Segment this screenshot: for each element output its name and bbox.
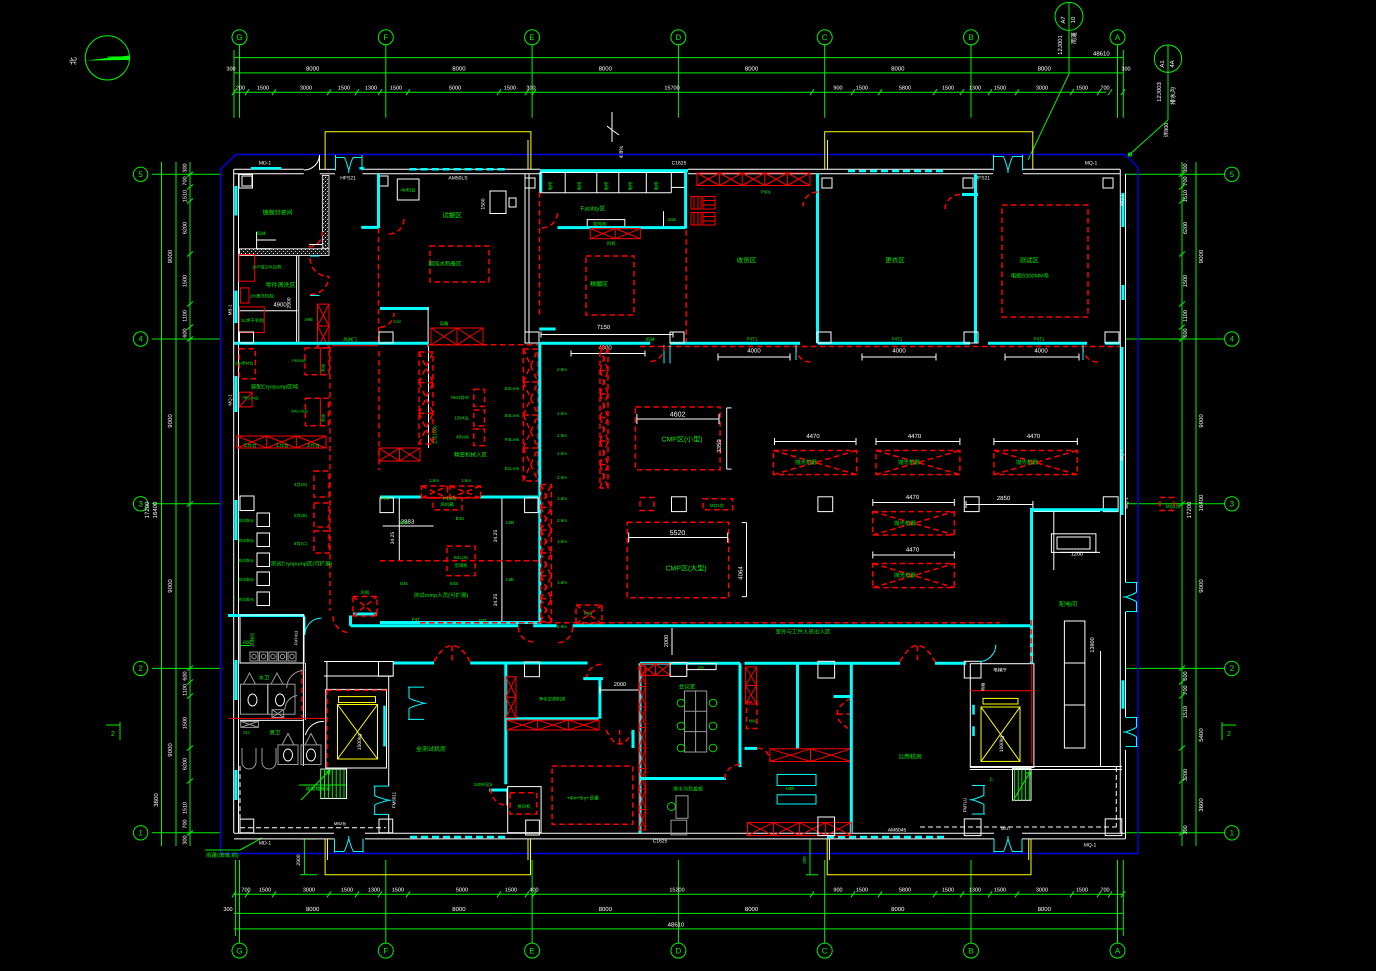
svg-text:17200: 17200 xyxy=(144,501,151,518)
svg-text:风淋: 风淋 xyxy=(646,337,655,342)
svg-text:1300: 1300 xyxy=(969,86,981,92)
svg-text:B4Lm6台: B4Lm6台 xyxy=(291,409,308,414)
svg-text:5000: 5000 xyxy=(456,888,468,894)
svg-text:300: 300 xyxy=(802,856,807,864)
svg-text:镀膜封装间: 镀膜封装间 xyxy=(262,209,292,217)
svg-text:工作台: 工作台 xyxy=(243,443,257,448)
svg-text:P09: P09 xyxy=(381,496,390,501)
svg-text:2: 2 xyxy=(1227,731,1231,738)
svg-text:风淋: 风淋 xyxy=(257,231,266,236)
svg-text:Facility区: Facility区 xyxy=(581,206,606,213)
svg-text:雨蓬(玻璃,钢): 雨蓬(玻璃,钢) xyxy=(206,852,239,859)
svg-text:4.8%: 4.8% xyxy=(619,146,625,159)
svg-text:2H清洗机组: 2H清洗机组 xyxy=(250,294,274,299)
svg-text:MQ-1: MQ-1 xyxy=(1124,497,1129,509)
svg-text:6200: 6200 xyxy=(183,222,189,234)
svg-text:1500: 1500 xyxy=(338,86,350,92)
svg-text:1500: 1500 xyxy=(994,888,1006,894)
svg-text:300: 300 xyxy=(526,86,535,92)
svg-text:抛光机器: 抛光机器 xyxy=(894,520,917,527)
svg-text:A: A xyxy=(1115,33,1121,42)
svg-text:P4T1: P4T1 xyxy=(1034,337,1045,342)
svg-text:排水沟: 排水沟 xyxy=(1169,87,1177,105)
svg-text:精鍍区: 精鍍区 xyxy=(590,280,608,288)
svg-text:配电间: 配电间 xyxy=(1059,600,1077,608)
svg-text:全测试机房: 全测试机房 xyxy=(416,745,446,753)
svg-text:3: 3 xyxy=(138,500,143,509)
svg-text:工位1000: 工位1000 xyxy=(433,425,438,445)
svg-text:1510: 1510 xyxy=(183,190,189,202)
svg-text:8000: 8000 xyxy=(452,66,466,73)
svg-text:3HE: 3HE xyxy=(304,317,313,322)
svg-text:700: 700 xyxy=(1100,86,1109,92)
svg-text:15200: 15200 xyxy=(669,888,684,894)
svg-text:MQ-1: MQ-1 xyxy=(228,394,233,406)
svg-text:1500: 1500 xyxy=(183,275,189,287)
svg-text:13900: 13900 xyxy=(1090,637,1096,652)
svg-text:2台: 2台 xyxy=(698,665,704,670)
svg-text:3000: 3000 xyxy=(1036,86,1048,92)
svg-text:2900: 2900 xyxy=(287,297,293,308)
svg-text:测试泵台: 测试泵台 xyxy=(238,597,254,602)
svg-text:B: B xyxy=(968,33,973,42)
svg-text:1.8m: 1.8m xyxy=(557,496,567,501)
svg-text:测试泵台: 测试泵台 xyxy=(238,577,254,582)
svg-text:8000: 8000 xyxy=(1038,906,1052,913)
svg-text:3200: 3200 xyxy=(1183,769,1189,781)
svg-text:4: 4 xyxy=(1230,335,1235,344)
svg-text:300: 300 xyxy=(226,67,235,73)
svg-text:MQ-1: MQ-1 xyxy=(1084,843,1097,849)
svg-text:1H7或10K台机: 1H7或10K台机 xyxy=(252,265,282,270)
svg-text:MQ-1: MQ-1 xyxy=(1085,161,1098,167)
svg-text:34.25: 34.25 xyxy=(390,532,396,545)
svg-text:17200: 17200 xyxy=(1186,501,1193,518)
svg-text:1500: 1500 xyxy=(183,717,189,729)
svg-text:1: 1 xyxy=(138,829,143,838)
svg-text:2.9m: 2.9m xyxy=(557,518,567,523)
svg-text:风淋门: 风淋门 xyxy=(343,337,357,342)
svg-text:9000: 9000 xyxy=(167,579,174,593)
svg-text:1504台: 1504台 xyxy=(454,416,469,421)
svg-text:1.8m: 1.8m xyxy=(557,580,567,585)
svg-text:4900: 4900 xyxy=(273,302,287,309)
svg-text:600: 600 xyxy=(1183,671,1189,680)
svg-text:测试泵台: 测试泵台 xyxy=(238,538,254,543)
svg-text:抛光机器: 抛光机器 xyxy=(795,459,818,466)
svg-text:P4M台: P4M台 xyxy=(443,496,457,501)
svg-text:会议室: 会议室 xyxy=(679,684,696,691)
svg-text:FM7LU: FM7LU xyxy=(963,798,968,813)
svg-text:1.8m: 1.8m xyxy=(429,478,439,483)
svg-text:电柜: 电柜 xyxy=(654,181,659,190)
svg-text:700: 700 xyxy=(241,888,250,894)
svg-text:D: D xyxy=(676,946,682,955)
svg-text:1500: 1500 xyxy=(1076,888,1088,894)
svg-text:电梯厅: 电梯厅 xyxy=(993,668,1007,673)
svg-text:3000: 3000 xyxy=(1036,888,1048,894)
svg-text:M61T: M61T xyxy=(1001,826,1012,831)
svg-text:收货区: 收货区 xyxy=(737,257,757,265)
svg-text:10: 10 xyxy=(1070,16,1077,23)
svg-text:泵组: 泵组 xyxy=(321,414,326,422)
svg-text:1500: 1500 xyxy=(341,888,353,894)
svg-text:1000kg: 1000kg xyxy=(999,736,1005,753)
svg-text:E: E xyxy=(529,33,534,42)
svg-text:3000: 3000 xyxy=(300,86,312,92)
svg-text:8000: 8000 xyxy=(306,66,320,73)
svg-text:公用机房: 公用机房 xyxy=(898,753,922,761)
svg-text:测试Cryopump区(可扩展): 测试Cryopump区(可扩展) xyxy=(270,561,332,568)
svg-text:6台(C): 6台(C) xyxy=(294,541,308,546)
svg-text:排风机: 排风机 xyxy=(517,804,531,809)
svg-text:6200: 6200 xyxy=(183,758,189,770)
svg-text:7150: 7150 xyxy=(597,324,611,331)
svg-text:6200: 6200 xyxy=(1183,222,1189,234)
svg-text:9000: 9000 xyxy=(167,743,174,757)
svg-text:8000: 8000 xyxy=(745,66,759,73)
svg-text:900: 900 xyxy=(833,888,842,894)
svg-text:8000: 8000 xyxy=(599,906,613,913)
svg-text:1500: 1500 xyxy=(259,888,271,894)
svg-text:D: D xyxy=(676,33,682,42)
svg-text:配电柜: 配电柜 xyxy=(593,222,607,227)
svg-text:700: 700 xyxy=(183,819,189,828)
svg-text:4602: 4602 xyxy=(670,412,686,419)
svg-text:3600: 3600 xyxy=(1198,798,1205,812)
svg-text:疏散楼梯间: 疏散楼梯间 xyxy=(305,786,330,793)
svg-text:A1: A1 xyxy=(1159,60,1166,68)
svg-text:700: 700 xyxy=(1183,685,1189,694)
svg-text:B4Lm6: B4Lm6 xyxy=(505,386,520,391)
svg-text:水卫: 水卫 xyxy=(258,675,270,682)
svg-text:3L烘干机组: 3L烘干机组 xyxy=(241,318,265,323)
svg-text:300: 300 xyxy=(1121,67,1130,73)
svg-text:1500: 1500 xyxy=(942,888,954,894)
svg-text:1510: 1510 xyxy=(1183,706,1189,718)
svg-text:B4U: B4U xyxy=(456,516,465,521)
svg-text:1100: 1100 xyxy=(183,310,189,322)
svg-text:3600: 3600 xyxy=(153,793,160,807)
svg-text:4台(A): 4台(A) xyxy=(294,482,308,487)
svg-text:2.9m: 2.9m xyxy=(557,475,567,480)
svg-text:600: 600 xyxy=(183,328,189,337)
svg-text:4470: 4470 xyxy=(1027,433,1041,440)
svg-text:2: 2 xyxy=(138,664,143,673)
svg-text:1500: 1500 xyxy=(856,86,868,92)
svg-text:5台(B): 5台(B) xyxy=(294,513,308,518)
svg-text:3: 3 xyxy=(1230,500,1235,509)
svg-text:A7: A7 xyxy=(1060,16,1067,24)
svg-text:AM50LS: AM50LS xyxy=(448,176,468,182)
svg-text:4M机台: 4M机台 xyxy=(400,188,416,193)
svg-text:设备: 设备 xyxy=(440,321,449,326)
svg-text:CMP区(大型): CMP区(大型) xyxy=(665,565,706,573)
svg-text:A: A xyxy=(1115,946,1121,955)
svg-text:8000: 8000 xyxy=(891,906,905,913)
svg-text:测试romp人员(可扩展): 测试romp人员(可扩展) xyxy=(414,592,469,599)
svg-text:P4T1: P4T1 xyxy=(892,337,903,342)
svg-text:244: 244 xyxy=(243,730,250,735)
svg-text:5400: 5400 xyxy=(1198,728,1205,742)
svg-text:MQ1台: MQ1台 xyxy=(1166,504,1181,509)
svg-text:1.8m: 1.8m xyxy=(557,451,567,456)
svg-text:MQ-1: MQ-1 xyxy=(1120,449,1125,461)
svg-text:9000: 9000 xyxy=(1198,249,1205,263)
svg-text:CMP区(小型): CMP区(小型) xyxy=(661,436,702,444)
svg-text:9000: 9000 xyxy=(1198,579,1205,593)
svg-text:9000: 9000 xyxy=(167,249,174,263)
svg-text:电柜: 电柜 xyxy=(628,181,633,190)
svg-text:600: 600 xyxy=(1183,328,1189,337)
svg-text:d4A: d4A xyxy=(668,217,676,222)
svg-text:L9E: L9E xyxy=(506,577,514,582)
svg-text:5520: 5520 xyxy=(670,530,686,537)
svg-text:F4b: F4b xyxy=(584,611,592,616)
svg-text:B4k: B4k xyxy=(400,581,409,586)
svg-text:风机: 风机 xyxy=(607,241,616,246)
svg-text:+4in+8ry+设备: +4in+8ry+设备 xyxy=(567,795,599,802)
svg-text:C: C xyxy=(822,946,828,955)
svg-text:300: 300 xyxy=(1183,163,1189,172)
svg-text:3000: 3000 xyxy=(303,888,315,894)
svg-text:1.8m: 1.8m xyxy=(557,539,567,544)
svg-text:北: 北 xyxy=(69,57,78,65)
svg-text:5000: 5000 xyxy=(449,86,461,92)
svg-text:4470: 4470 xyxy=(906,494,920,501)
svg-text:4: 4 xyxy=(138,335,143,344)
svg-text:MD-1: MD-1 xyxy=(259,841,271,847)
svg-text:C1625: C1625 xyxy=(672,161,687,167)
svg-text:34.25: 34.25 xyxy=(493,594,499,607)
svg-text:B4L(A): B4L(A) xyxy=(454,555,469,560)
svg-text:L9B: L9B xyxy=(506,520,514,525)
svg-text:测试泵台: 测试泵台 xyxy=(238,558,254,563)
svg-text:F: F xyxy=(383,33,388,42)
svg-text:1500: 1500 xyxy=(481,198,487,209)
svg-text:装配Cryopump区域: 装配Cryopump区域 xyxy=(251,384,299,391)
svg-text:7664台W: 7664台W xyxy=(450,395,470,400)
svg-text:H4R: H4R xyxy=(785,786,795,791)
svg-text:精密机械入区: 精密机械入区 xyxy=(454,452,488,459)
svg-text:4000: 4000 xyxy=(892,347,906,354)
svg-text:1500: 1500 xyxy=(390,86,402,92)
svg-text:700: 700 xyxy=(1183,176,1189,185)
svg-text:48610: 48610 xyxy=(668,922,685,929)
svg-text:1500: 1500 xyxy=(1183,275,1189,287)
svg-text:2.9m: 2.9m xyxy=(557,624,567,629)
svg-text:详800: 详800 xyxy=(1163,123,1170,138)
svg-text:电柜: 电柜 xyxy=(577,181,582,190)
svg-text:2000: 2000 xyxy=(664,635,670,647)
svg-text:8000: 8000 xyxy=(1038,66,1052,73)
svg-text:5800: 5800 xyxy=(899,86,911,92)
svg-text:1500: 1500 xyxy=(392,888,404,894)
svg-text:2850: 2850 xyxy=(997,495,1011,502)
svg-text:300: 300 xyxy=(223,907,232,913)
svg-text:3359: 3359 xyxy=(716,439,723,453)
svg-text:MD-1: MD-1 xyxy=(259,161,271,167)
svg-text:室外与工件人员出入区: 室外与工件人员出入区 xyxy=(775,629,831,636)
svg-text:G: G xyxy=(236,33,242,42)
svg-text:900: 900 xyxy=(833,86,842,92)
svg-text:8000: 8000 xyxy=(306,906,320,913)
svg-text:1500: 1500 xyxy=(856,888,868,894)
svg-text:5: 5 xyxy=(1230,170,1235,179)
svg-text:48610: 48610 xyxy=(1093,50,1110,57)
svg-text:FM7413: FM7413 xyxy=(294,630,299,645)
svg-text:1500: 1500 xyxy=(1076,86,1088,92)
svg-text:2.9m: 2.9m xyxy=(557,367,567,372)
svg-text:1100: 1100 xyxy=(1183,310,1189,322)
svg-text:5800: 5800 xyxy=(899,888,911,894)
svg-text:2: 2 xyxy=(111,731,115,738)
svg-text:试鍍区: 试鍍区 xyxy=(442,212,462,220)
svg-text:34.25: 34.25 xyxy=(493,530,499,543)
svg-text:300: 300 xyxy=(183,835,189,844)
svg-text:B06: B06 xyxy=(400,520,409,525)
svg-text:P4Lm6: P4Lm6 xyxy=(505,437,520,442)
svg-text:P4T1: P4T1 xyxy=(747,337,758,342)
svg-text:12J003: 12J003 xyxy=(1156,81,1163,101)
svg-text:C1625: C1625 xyxy=(653,839,668,845)
svg-text:16400: 16400 xyxy=(152,501,159,518)
svg-text:电柜: 电柜 xyxy=(604,181,609,190)
svg-text:零件清洗区: 零件清洗区 xyxy=(265,281,295,289)
svg-text:抛光机器: 抛光机器 xyxy=(898,459,921,466)
svg-text:B4Lm6: B4Lm6 xyxy=(505,413,520,418)
svg-text:风机: 风机 xyxy=(361,590,370,595)
svg-text:600: 600 xyxy=(183,671,189,680)
svg-text:16400: 16400 xyxy=(1198,494,1205,511)
svg-text:工作台: 工作台 xyxy=(275,443,289,448)
svg-text:C: C xyxy=(822,33,828,42)
svg-text:2.9m: 2.9m xyxy=(557,433,567,438)
svg-text:15700: 15700 xyxy=(664,86,679,92)
svg-text:2900: 2900 xyxy=(296,854,302,865)
svg-text:1100: 1100 xyxy=(183,684,189,696)
svg-text:300: 300 xyxy=(1183,825,1189,834)
svg-text:1M0F区b: 1M0F区b xyxy=(474,782,493,787)
svg-text:1.8m: 1.8m xyxy=(557,411,567,416)
svg-text:FM6011: FM6011 xyxy=(392,791,397,808)
svg-text:9000: 9000 xyxy=(167,414,174,428)
svg-text:MQ1台: MQ1台 xyxy=(710,503,725,508)
svg-text:电脑S300MM条: 电脑S300MM条 xyxy=(1011,273,1050,280)
svg-text:1300: 1300 xyxy=(969,888,981,894)
svg-text:1: 1 xyxy=(1230,829,1235,838)
svg-text:8000: 8000 xyxy=(452,906,466,913)
svg-text:2000: 2000 xyxy=(614,682,626,688)
svg-text:2: 2 xyxy=(1230,664,1235,673)
svg-text:E4b: E4b xyxy=(450,581,459,586)
svg-text:更衣区: 更衣区 xyxy=(885,257,905,265)
svg-text:4504A: 4504A xyxy=(456,434,469,439)
svg-text:B: B xyxy=(968,946,973,955)
svg-text:4000: 4000 xyxy=(1034,347,1048,354)
svg-text:1510: 1510 xyxy=(183,802,189,814)
svg-text:P4T: P4T xyxy=(412,617,421,622)
svg-text:P60A台: P60A台 xyxy=(292,358,306,363)
svg-text:H4L: H4L xyxy=(749,719,758,724)
svg-text:T号U04台: T号U04台 xyxy=(241,396,259,401)
svg-text:抛光机器: 抛光机器 xyxy=(1016,459,1039,466)
svg-text:4470: 4470 xyxy=(806,433,820,440)
svg-text:1.6m: 1.6m xyxy=(461,478,471,483)
svg-text:E: E xyxy=(529,946,534,955)
svg-text:8000: 8000 xyxy=(599,66,613,73)
svg-text:12J001: 12J001 xyxy=(1057,34,1064,54)
svg-text:200: 200 xyxy=(236,86,245,92)
svg-text:MB-1: MB-1 xyxy=(228,304,233,315)
svg-text:300: 300 xyxy=(183,163,189,172)
svg-text:F: F xyxy=(383,946,388,955)
svg-text:HFS21: HFS21 xyxy=(340,176,356,182)
svg-text:4470: 4470 xyxy=(906,547,920,554)
svg-text:B1Lm6: B1Lm6 xyxy=(505,466,520,471)
svg-text:MB2台: MB2台 xyxy=(334,821,346,826)
svg-text:测试区: 测试区 xyxy=(1019,257,1039,265)
svg-text:4.5t: 4.5t xyxy=(393,319,401,324)
svg-text:净化空调机房: 净化空调机房 xyxy=(539,697,566,702)
svg-text:空调机: 空调机 xyxy=(454,563,468,568)
svg-text:超纯水制备区: 超纯水制备区 xyxy=(428,261,462,268)
svg-text:上: 上 xyxy=(988,776,993,783)
svg-text:1500: 1500 xyxy=(257,86,269,92)
svg-text:8000: 8000 xyxy=(891,66,905,73)
svg-text:5: 5 xyxy=(138,170,143,179)
svg-text:4A: 4A xyxy=(1169,60,1176,67)
svg-text:400: 400 xyxy=(529,888,538,894)
svg-text:P60L: P60L xyxy=(761,190,772,195)
svg-text:1500: 1500 xyxy=(505,888,517,894)
svg-text:1500: 1500 xyxy=(504,86,516,92)
svg-text:排水沟及盖板: 排水沟及盖板 xyxy=(673,786,703,793)
svg-text:抛光机器: 抛光机器 xyxy=(894,572,917,579)
svg-text:电柜: 电柜 xyxy=(548,181,553,190)
svg-text:1300: 1300 xyxy=(368,888,380,894)
svg-text:700: 700 xyxy=(183,176,189,185)
svg-text:风机箱: 风机箱 xyxy=(440,502,454,507)
svg-text:工作台: 工作台 xyxy=(306,443,320,448)
svg-text:L台H泵M台: L台H泵M台 xyxy=(233,361,253,366)
svg-text:1510: 1510 xyxy=(1183,190,1189,202)
svg-text:泵组: 泵组 xyxy=(321,364,326,372)
svg-text:700: 700 xyxy=(1100,888,1109,894)
svg-text:G: G xyxy=(236,946,242,955)
svg-text:1300: 1300 xyxy=(365,86,377,92)
svg-text:轿厢: 轿厢 xyxy=(981,683,986,691)
svg-text:4470: 4470 xyxy=(908,433,922,440)
svg-text:MQ-1: MQ-1 xyxy=(1120,194,1125,206)
svg-text:男卫: 男卫 xyxy=(269,730,281,737)
svg-text:1500: 1500 xyxy=(994,86,1006,92)
svg-text:8000: 8000 xyxy=(745,906,759,913)
svg-text:雨蓬: 雨蓬 xyxy=(1070,32,1078,44)
svg-text:1500kg: 1500kg xyxy=(357,734,363,751)
svg-text:4064: 4064 xyxy=(738,566,745,580)
svg-text:9000: 9000 xyxy=(1198,414,1205,428)
svg-text:1500: 1500 xyxy=(942,86,954,92)
svg-text:测试泵台: 测试泵台 xyxy=(238,518,254,523)
svg-text:4000: 4000 xyxy=(747,347,761,354)
svg-text:AM6045: AM6045 xyxy=(888,828,907,834)
